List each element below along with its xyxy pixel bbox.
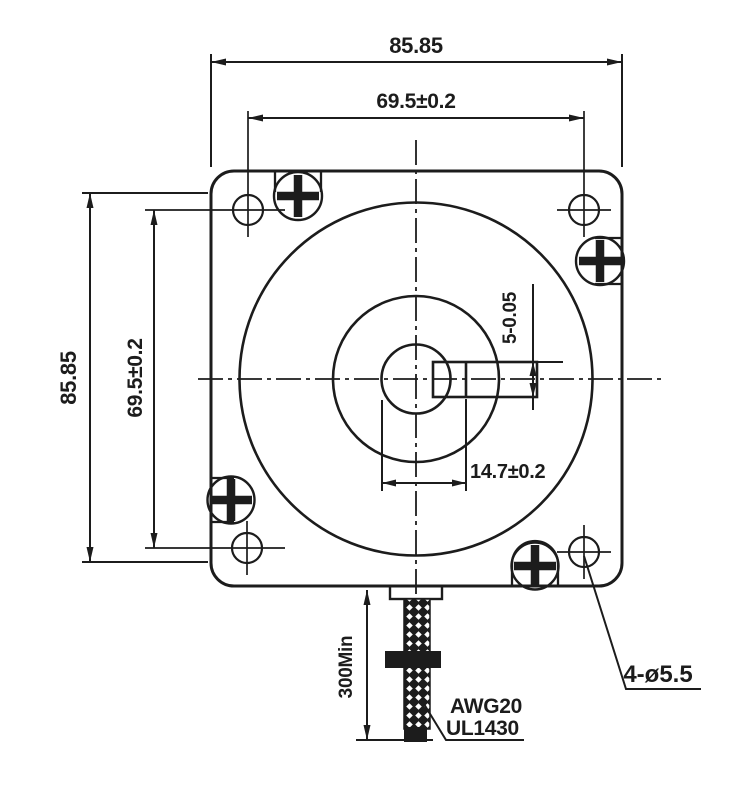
motor-dimension-drawing: 85.85 69.5±0.2 85.85 69.5±0.2 5-0.05 xyxy=(0,0,735,795)
dimension-bolt-spacing-height: 69.5±0.2 xyxy=(124,210,158,548)
dimension-bolt-spacing-width: 69.5±0.2 xyxy=(248,90,584,122)
leader-wire-spec: AWG20 UL1430 xyxy=(424,695,524,740)
dimension-shaft-flat: 5-0.05 xyxy=(500,284,563,410)
dim-label-bolt-spacing-height: 69.5±0.2 xyxy=(124,338,147,417)
dim-label-cable-length: 300Min xyxy=(336,636,357,699)
dim-label-shaft-flat: 5-0.05 xyxy=(500,291,521,344)
drawing-canvas: 85.85 69.5±0.2 85.85 69.5±0.2 5-0.05 xyxy=(0,0,735,795)
cable-clamp-band xyxy=(385,651,441,668)
cover-screw-bottom xyxy=(512,541,559,590)
dim-label-bolt-spacing-width: 69.5±0.2 xyxy=(376,90,455,113)
dim-label-overall-width: 85.85 xyxy=(389,33,443,58)
cover-screw-top-left xyxy=(274,171,322,220)
leader-mounting-holes: 4-ø5.5 xyxy=(584,556,701,689)
label-wire-gauge: AWG20 xyxy=(450,695,522,718)
dim-label-flat-length: 14.7±0.2 xyxy=(470,461,545,483)
dim-label-overall-height: 85.85 xyxy=(56,351,81,405)
cover-screw-bottom-left xyxy=(208,477,255,524)
mounting-hole-top-right xyxy=(557,111,611,237)
mounting-hole-top-left xyxy=(145,111,285,237)
cover-screw-top-right xyxy=(576,237,624,285)
label-wire-standard: UL1430 xyxy=(446,717,519,740)
mounting-hole-bottom-left xyxy=(145,521,285,575)
mounting-hole-bottom-right xyxy=(557,525,611,579)
label-mounting-holes: 4-ø5.5 xyxy=(623,661,692,688)
